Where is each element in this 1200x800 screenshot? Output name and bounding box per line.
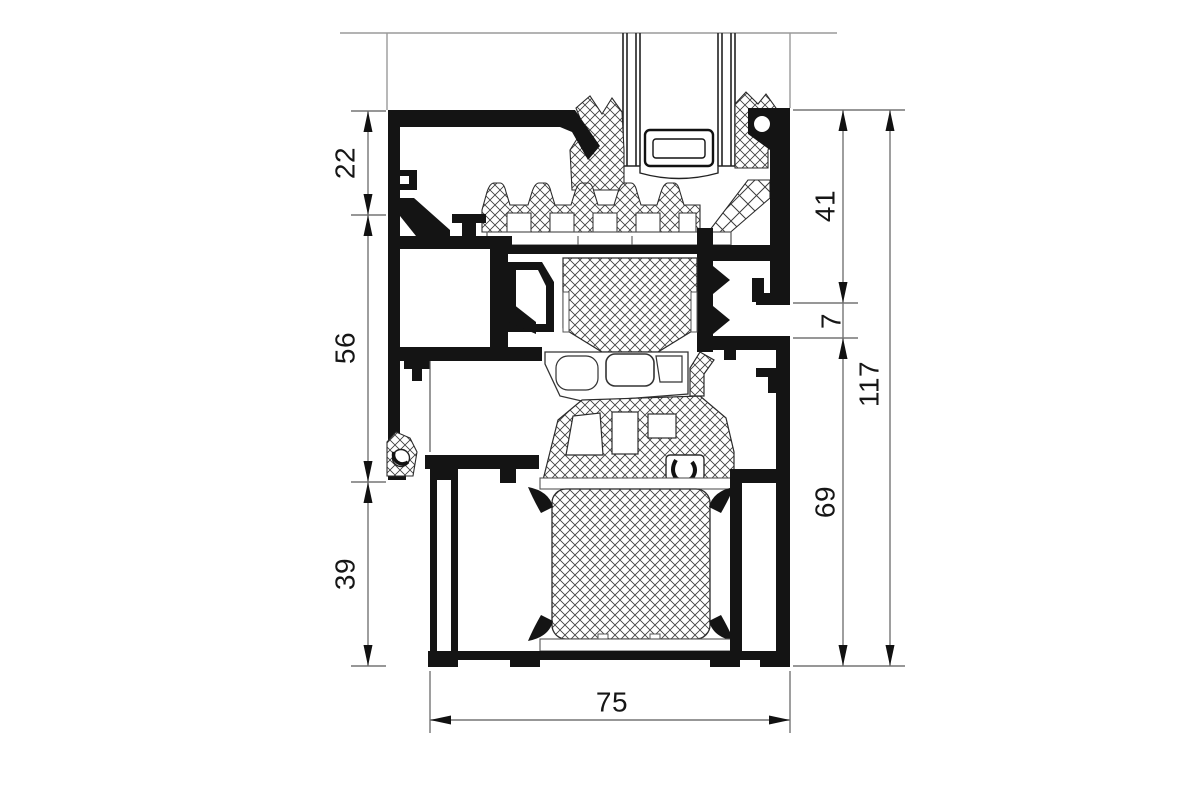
profile-cross-section: 22 56 39 41 7 69 117 75 <box>0 0 1200 800</box>
frame-left-wall <box>388 110 400 480</box>
spacer-bar-inner <box>653 139 705 158</box>
frame-gusset <box>400 198 450 241</box>
edge-sealant <box>640 166 718 179</box>
bead-wall <box>770 180 790 305</box>
sash-chamber-box <box>606 354 654 386</box>
dim-label-117: 117 <box>853 361 884 407</box>
dim-label-22: 22 <box>329 147 360 179</box>
glass-pane-left <box>623 33 640 166</box>
dim-label-41: 41 <box>809 190 840 222</box>
gasket-flag <box>690 352 714 396</box>
glazing-bridge <box>487 232 731 245</box>
dim-label-56: 56 <box>329 332 360 364</box>
frame-right-wall <box>776 350 790 665</box>
dim-label-7: 7 <box>815 313 846 329</box>
bottom-frame-right-chamber <box>730 483 742 653</box>
thermal-foam-block <box>552 489 710 639</box>
frame-right-top-bar <box>713 336 790 350</box>
dim-label-39: 39 <box>329 558 360 590</box>
drawing-canvas: 22 56 39 41 7 69 117 75 <box>0 0 1200 800</box>
frame-shelf-lower <box>400 347 542 361</box>
glass-pane-right <box>718 33 735 166</box>
dim-label-75: 75 <box>596 686 628 717</box>
glass-unit <box>623 33 735 179</box>
sash-foam-insert <box>563 258 697 352</box>
dim-label-69: 69 <box>809 486 840 518</box>
sash-left-wall <box>490 245 508 348</box>
frame-top-bar <box>388 110 572 127</box>
